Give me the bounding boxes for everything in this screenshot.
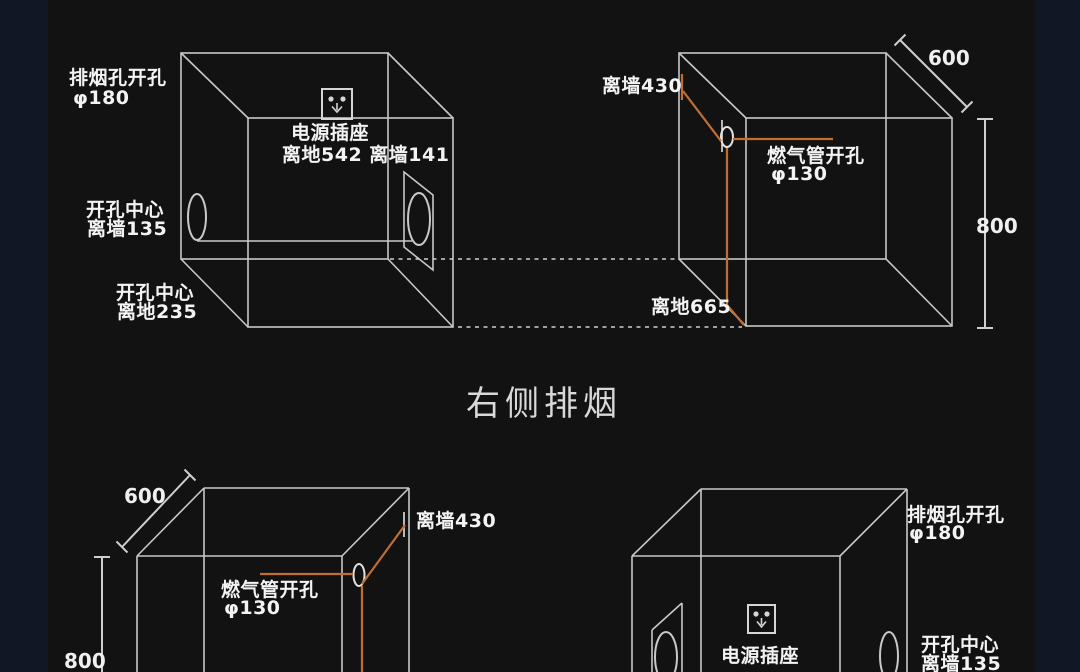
socket-arrow xyxy=(332,103,342,112)
label-socket: 电源插座 xyxy=(291,124,369,143)
label-socket-dims: 离地542 离墙141 xyxy=(282,146,449,165)
socket-arrow xyxy=(757,618,766,627)
power-socket-icon xyxy=(322,89,352,119)
exhaust-hole-left-ellipse xyxy=(188,194,206,240)
installation-diagram: 排烟孔开孔 φ180 电源插座 离地542 离墙141 开孔中心 离墙135 开… xyxy=(0,0,1080,672)
exhaust-hole-left-ellipse xyxy=(655,632,677,672)
label-hole-center-wall: 离墙135 xyxy=(87,220,167,239)
label-hole-center-floor: 离地235 xyxy=(117,303,197,322)
socket-pin-left xyxy=(754,612,757,615)
top-right-cabinet-wireframe xyxy=(679,53,952,326)
depth-edges xyxy=(679,53,952,326)
label-gas-hole-dia: φ130 xyxy=(771,165,828,184)
label-socket-br: 电源插座 xyxy=(721,647,799,666)
socket-pin-left xyxy=(329,97,332,100)
dim-label-600: 600 xyxy=(928,48,970,68)
label-wall-offset: 离墙430 xyxy=(602,77,682,96)
power-socket-icon-bottom xyxy=(748,605,775,633)
label-wall-offset-bl: 离墙430 xyxy=(416,512,496,531)
label-floor-offset: 离地665 xyxy=(651,298,731,317)
exhaust-hole-right-ellipse xyxy=(408,193,430,245)
section-title: 右侧排烟 xyxy=(466,387,622,421)
label-hole-center-wall-br: 离墙135 xyxy=(921,655,1001,672)
dim-label-800-bl: 800 xyxy=(64,651,106,671)
exhaust-hole-right-ellipse xyxy=(880,632,898,672)
dim-600-bottom-left xyxy=(117,470,196,553)
label-gas-hole-dia-bl: φ130 xyxy=(224,599,281,618)
top-left-cabinet-wireframe xyxy=(181,53,453,327)
dim-label-600-bl: 600 xyxy=(124,486,166,506)
label-exhaust-hole: 排烟孔开孔 xyxy=(69,69,167,88)
depth-edges xyxy=(181,53,453,327)
socket-pin-right xyxy=(341,97,344,100)
label-exhaust-hole-dia-br: φ180 xyxy=(909,524,966,543)
wireframe-drawing xyxy=(0,0,1080,672)
socket-pin-right xyxy=(765,612,768,615)
label-exhaust-hole-dia: φ180 xyxy=(73,89,130,108)
orange-dimension-lines-top-right xyxy=(682,74,833,325)
dim-label-800: 800 xyxy=(976,216,1018,236)
